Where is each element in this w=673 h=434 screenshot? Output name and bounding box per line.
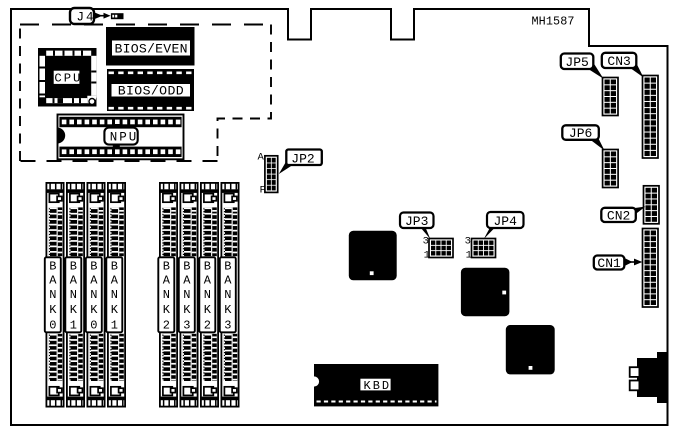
- svg-text:1: 1: [70, 319, 77, 333]
- svg-text:BIOS/EVEN: BIOS/EVEN: [115, 41, 188, 56]
- svg-text:JP4: JP4: [493, 214, 517, 229]
- svg-text:CN2: CN2: [607, 208, 630, 223]
- svg-text:3: 3: [183, 319, 190, 333]
- svg-text:MH1587: MH1587: [532, 14, 575, 28]
- svg-text:KBD: KBD: [364, 379, 392, 393]
- svg-text:NPU: NPU: [110, 131, 139, 145]
- svg-text:1: 1: [424, 250, 430, 262]
- svg-text:1: 1: [111, 319, 118, 333]
- svg-text:2: 2: [163, 319, 170, 333]
- svg-text:0: 0: [49, 319, 56, 333]
- svg-text:3: 3: [465, 236, 471, 248]
- svg-text:F: F: [260, 184, 266, 196]
- svg-text:2: 2: [204, 319, 211, 333]
- svg-text:1: 1: [466, 250, 472, 262]
- svg-text:JP5: JP5: [565, 55, 588, 70]
- svg-text:CN3: CN3: [607, 54, 630, 69]
- svg-text:JP3: JP3: [405, 214, 428, 229]
- svg-text:J4: J4: [77, 11, 96, 25]
- svg-text:JP6: JP6: [569, 126, 592, 141]
- svg-text:3: 3: [423, 236, 429, 248]
- svg-text:BIOS/ODD: BIOS/ODD: [118, 84, 184, 99]
- svg-text:CN1: CN1: [597, 256, 621, 271]
- svg-text:JP2: JP2: [291, 152, 314, 167]
- svg-text:CPU: CPU: [54, 72, 82, 86]
- svg-text:0: 0: [90, 319, 97, 333]
- svg-text:A: A: [258, 152, 265, 164]
- svg-text:3: 3: [224, 319, 231, 333]
